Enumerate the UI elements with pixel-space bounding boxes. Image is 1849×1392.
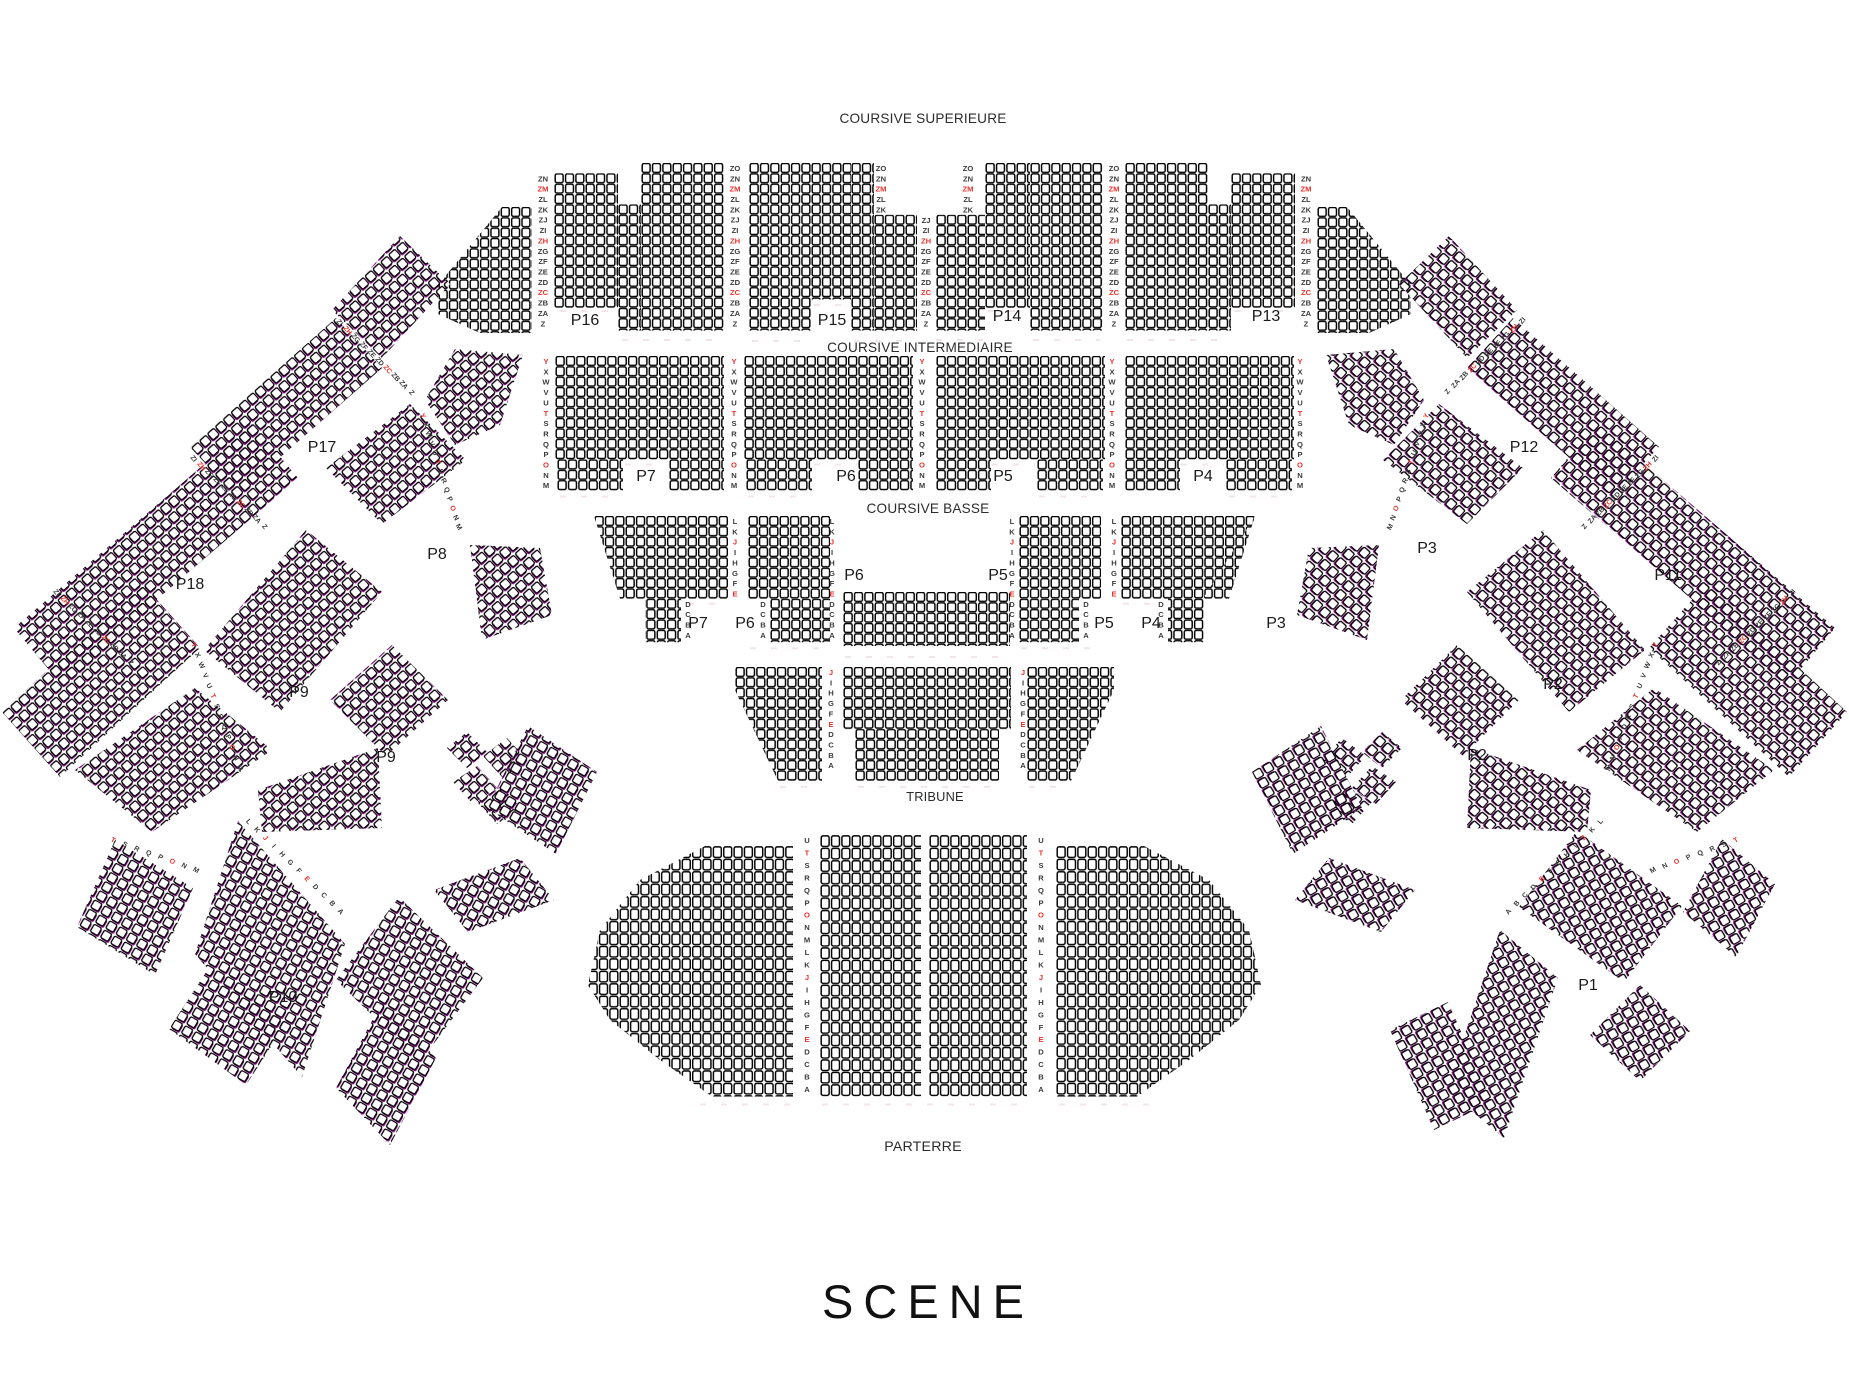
svg-text:A: A [685, 631, 691, 640]
svg-text:ZD: ZD [730, 278, 741, 287]
svg-text:P: P [804, 898, 809, 907]
svg-text:E: E [829, 590, 834, 599]
svg-text:Z: Z [1112, 319, 1117, 328]
svg-text:E: E [1111, 590, 1116, 599]
svg-text:H: H [732, 558, 737, 567]
svg-text:P15: P15 [818, 312, 847, 329]
svg-text:ZG: ZG [1301, 247, 1312, 256]
svg-text:Y: Y [1109, 357, 1114, 366]
svg-text:ZA: ZA [538, 309, 549, 318]
svg-text:ZD: ZD [538, 278, 549, 287]
svg-text:E: E [1009, 590, 1014, 599]
svg-text:ZE: ZE [730, 268, 740, 277]
svg-text:ZB: ZB [730, 299, 741, 308]
svg-text:COURSIVE BASSE: COURSIVE BASSE [867, 501, 990, 516]
svg-text:ZL: ZL [730, 195, 740, 204]
svg-text:G: G [804, 1010, 810, 1019]
svg-text:ZH: ZH [730, 236, 740, 245]
svg-text:C: C [804, 1060, 810, 1069]
svg-text:S: S [804, 861, 809, 870]
svg-text:ZE: ZE [1301, 268, 1311, 277]
svg-text:P5: P5 [993, 468, 1013, 485]
svg-text:T: T [805, 849, 810, 858]
svg-text:P3: P3 [1417, 540, 1437, 557]
svg-text:ZD: ZD [1109, 278, 1120, 287]
svg-text:ZK: ZK [1301, 205, 1312, 214]
svg-text:ZE: ZE [538, 268, 548, 277]
svg-text:ZD: ZD [1301, 278, 1312, 287]
svg-text:N: N [804, 923, 809, 932]
svg-text:A: A [1083, 631, 1089, 640]
svg-text:ZO: ZO [1109, 164, 1120, 173]
svg-text:ZI: ZI [540, 226, 547, 235]
svg-text:L: L [733, 517, 738, 526]
svg-text:O: O [919, 461, 925, 470]
svg-text:K: K [1038, 961, 1044, 970]
svg-text:G: G [1038, 1010, 1044, 1019]
svg-text:K: K [1111, 527, 1117, 536]
svg-text:P1: P1 [1578, 977, 1598, 994]
svg-text:D: D [685, 600, 691, 609]
svg-text:SCENE: SCENE [822, 1275, 1034, 1328]
svg-text:N: N [919, 471, 924, 480]
svg-text:ZN: ZN [876, 174, 886, 183]
svg-text:C: C [1038, 1060, 1044, 1069]
svg-text:W: W [730, 378, 738, 387]
svg-text:ZH: ZH [1301, 236, 1311, 245]
svg-text:O: O [804, 911, 810, 920]
svg-text:ZL: ZL [1109, 195, 1119, 204]
svg-text:F: F [1010, 579, 1015, 588]
svg-text:ZF: ZF [1109, 257, 1119, 266]
svg-text:ZL: ZL [876, 195, 886, 204]
svg-text:H: H [829, 558, 834, 567]
svg-text:D: D [828, 730, 834, 739]
svg-text:B: B [1083, 621, 1089, 630]
svg-text:P: P [543, 450, 548, 459]
svg-text:I: I [806, 985, 808, 994]
svg-text:K: K [1009, 527, 1015, 536]
svg-text:D: D [1158, 600, 1164, 609]
svg-text:ZE: ZE [921, 268, 931, 277]
svg-text:ZK: ZK [1109, 205, 1120, 214]
svg-text:A: A [804, 1085, 810, 1094]
svg-text:L: L [830, 517, 835, 526]
svg-text:Y: Y [731, 357, 736, 366]
svg-text:R: R [1297, 430, 1303, 439]
svg-text:U: U [1109, 398, 1115, 407]
svg-text:ZO: ZO [876, 164, 887, 173]
svg-text:P9: P9 [376, 749, 396, 766]
svg-text:P: P [731, 450, 736, 459]
svg-text:N: N [543, 471, 548, 480]
svg-text:L: L [1039, 948, 1044, 957]
svg-text:H: H [828, 689, 833, 698]
svg-text:O: O [543, 461, 549, 470]
svg-text:G: G [828, 699, 834, 708]
svg-text:W: W [1108, 378, 1116, 387]
svg-text:J: J [829, 668, 833, 677]
svg-text:D: D [1038, 1048, 1044, 1057]
svg-text:F: F [805, 1023, 810, 1032]
svg-text:A: A [1009, 631, 1015, 640]
svg-text:I: I [1022, 678, 1024, 687]
svg-text:M: M [919, 481, 925, 490]
svg-text:COURSIVE SUPERIEURE: COURSIVE SUPERIEURE [840, 111, 1007, 126]
svg-text:I: I [1040, 985, 1042, 994]
svg-text:E: E [1020, 720, 1025, 729]
svg-text:Q: Q [1109, 440, 1115, 449]
svg-text:ZK: ZK [876, 205, 887, 214]
svg-text:M: M [1109, 481, 1115, 490]
svg-text:Z: Z [541, 319, 546, 328]
svg-text:X: X [1297, 367, 1302, 376]
svg-text:G: G [1009, 569, 1015, 578]
svg-text:I: I [734, 548, 736, 557]
svg-text:ZI: ZI [1111, 226, 1118, 235]
svg-text:COURSIVE INTERMEDIAIRE: COURSIVE INTERMEDIAIRE [827, 340, 1013, 355]
svg-text:M: M [1038, 936, 1044, 945]
svg-text:N: N [1038, 923, 1043, 932]
svg-text:L: L [1112, 517, 1117, 526]
svg-text:P9: P9 [289, 684, 309, 701]
svg-text:ZG: ZG [730, 247, 741, 256]
svg-text:P3: P3 [1266, 615, 1286, 632]
svg-text:ZI: ZI [1303, 226, 1310, 235]
svg-text:PARTERRE: PARTERRE [884, 1139, 962, 1155]
svg-text:ZA: ZA [921, 309, 932, 318]
svg-text:ZA: ZA [1109, 309, 1120, 318]
svg-text:T: T [1298, 409, 1303, 418]
svg-text:I: I [830, 678, 832, 687]
svg-text:ZG: ZG [538, 247, 549, 256]
svg-text:P2: P2 [1467, 747, 1487, 764]
svg-text:S: S [1297, 419, 1302, 428]
svg-text:ZB: ZB [1109, 299, 1120, 308]
svg-text:R: R [543, 430, 549, 439]
svg-text:I: I [1113, 548, 1115, 557]
svg-text:Z: Z [924, 319, 929, 328]
svg-text:U: U [919, 398, 925, 407]
svg-text:ZO: ZO [730, 164, 741, 173]
svg-text:M: M [1297, 481, 1303, 490]
svg-text:E: E [1038, 1035, 1043, 1044]
svg-text:B: B [829, 621, 835, 630]
svg-text:C: C [1083, 610, 1089, 619]
svg-text:ZJ: ZJ [731, 216, 740, 225]
svg-text:ZJ: ZJ [922, 216, 931, 225]
svg-text:ZF: ZF [730, 257, 740, 266]
svg-text:F: F [1039, 1023, 1044, 1032]
svg-text:R: R [804, 873, 810, 882]
svg-text:ZK: ZK [538, 205, 549, 214]
svg-text:Z: Z [1304, 319, 1309, 328]
svg-text:G: G [732, 569, 738, 578]
svg-text:ZC: ZC [921, 288, 932, 297]
svg-text:ZL: ZL [538, 195, 548, 204]
svg-text:A: A [1158, 631, 1164, 640]
svg-text:P17: P17 [308, 439, 337, 456]
svg-text:F: F [1112, 579, 1117, 588]
svg-text:E: E [804, 1035, 809, 1044]
svg-text:ZK: ZK [963, 205, 974, 214]
svg-text:F: F [733, 579, 738, 588]
svg-text:Q: Q [919, 440, 925, 449]
svg-text:H: H [1038, 998, 1043, 1007]
svg-text:P: P [1109, 450, 1114, 459]
svg-text:C: C [828, 741, 834, 750]
svg-text:P6: P6 [844, 567, 864, 584]
svg-text:N: N [731, 471, 736, 480]
svg-text:U: U [1038, 836, 1044, 845]
svg-text:ZC: ZC [1301, 288, 1312, 297]
svg-text:A: A [829, 631, 835, 640]
svg-text:P14: P14 [993, 308, 1022, 325]
svg-text:ZM: ZM [1109, 185, 1120, 194]
svg-text:B: B [760, 621, 766, 630]
svg-text:U: U [543, 398, 549, 407]
svg-text:D: D [1083, 600, 1089, 609]
svg-text:ZL: ZL [1301, 195, 1311, 204]
svg-text:T: T [1039, 849, 1044, 858]
svg-text:B: B [804, 1073, 810, 1082]
svg-text:Y: Y [919, 357, 924, 366]
svg-text:ZM: ZM [538, 185, 549, 194]
svg-text:ZK: ZK [730, 205, 741, 214]
svg-text:ZA: ZA [730, 309, 741, 318]
svg-text:ZN: ZN [538, 174, 548, 183]
svg-text:T: T [920, 409, 925, 418]
svg-text:ZE: ZE [1109, 268, 1119, 277]
svg-text:ZB: ZB [538, 299, 549, 308]
svg-text:U: U [731, 398, 737, 407]
svg-text:M: M [731, 481, 737, 490]
svg-text:T: T [544, 409, 549, 418]
svg-text:L: L [805, 948, 810, 957]
svg-text:ZC: ZC [1109, 288, 1120, 297]
svg-text:TRIBUNE: TRIBUNE [906, 789, 964, 804]
svg-text:E: E [732, 590, 737, 599]
svg-text:R: R [1038, 873, 1044, 882]
svg-text:Y: Y [543, 357, 548, 366]
svg-text:X: X [731, 367, 736, 376]
svg-text:Q: Q [1038, 886, 1044, 895]
svg-text:ZO: ZO [963, 164, 974, 173]
svg-text:ZJ: ZJ [1302, 216, 1311, 225]
svg-text:S: S [731, 419, 736, 428]
svg-text:ZI: ZI [732, 226, 739, 235]
svg-text:ZD: ZD [921, 278, 932, 287]
svg-text:F: F [830, 579, 835, 588]
svg-text:G: G [829, 569, 835, 578]
svg-text:K: K [804, 961, 810, 970]
svg-text:S: S [919, 419, 924, 428]
svg-text:U: U [804, 836, 810, 845]
svg-text:J: J [1039, 973, 1043, 982]
svg-text:J: J [1010, 538, 1014, 547]
svg-text:H: H [1009, 558, 1014, 567]
svg-text:ZM: ZM [876, 185, 887, 194]
svg-text:J: J [805, 973, 809, 982]
svg-text:R: R [919, 430, 925, 439]
svg-text:G: G [1020, 699, 1026, 708]
svg-text:N: N [1109, 471, 1114, 480]
svg-text:P7: P7 [688, 615, 708, 632]
svg-text:O: O [731, 461, 737, 470]
svg-text:A: A [1020, 761, 1026, 770]
svg-text:ZN: ZN [963, 174, 973, 183]
svg-text:P: P [1038, 898, 1043, 907]
svg-text:C: C [1020, 741, 1026, 750]
svg-text:P4: P4 [1193, 468, 1213, 485]
svg-text:P2: P2 [1543, 676, 1563, 693]
svg-text:ZH: ZH [1109, 236, 1119, 245]
svg-text:ZC: ZC [538, 288, 549, 297]
svg-text:P: P [1297, 450, 1302, 459]
svg-text:ZB: ZB [1301, 299, 1312, 308]
svg-text:U: U [1297, 398, 1303, 407]
svg-text:B: B [1020, 751, 1026, 760]
svg-text:W: W [918, 378, 926, 387]
svg-text:A: A [828, 761, 834, 770]
svg-text:P10: P10 [269, 989, 298, 1006]
svg-text:ZA: ZA [1301, 309, 1312, 318]
svg-text:K: K [829, 527, 835, 536]
svg-text:D: D [804, 1048, 810, 1057]
svg-text:P8: P8 [427, 546, 447, 563]
svg-text:R: R [731, 430, 737, 439]
svg-text:I: I [1011, 548, 1013, 557]
svg-text:Q: Q [1297, 440, 1303, 449]
svg-text:A: A [760, 631, 766, 640]
svg-text:D: D [829, 600, 835, 609]
svg-text:P11: P11 [1654, 567, 1681, 584]
svg-text:Q: Q [731, 440, 737, 449]
svg-text:ZF: ZF [921, 257, 931, 266]
svg-text:N: N [1297, 471, 1302, 480]
svg-text:ZG: ZG [921, 247, 932, 256]
svg-text:G: G [1111, 569, 1117, 578]
svg-text:ZN: ZN [1109, 174, 1119, 183]
svg-text:J: J [1112, 538, 1116, 547]
svg-text:Y: Y [1297, 357, 1302, 366]
svg-text:P12: P12 [1510, 439, 1539, 456]
svg-text:K: K [732, 527, 738, 536]
svg-text:ZM: ZM [963, 185, 974, 194]
svg-text:W: W [542, 378, 550, 387]
svg-text:A: A [1038, 1085, 1044, 1094]
svg-text:S: S [543, 419, 548, 428]
svg-text:P6: P6 [836, 468, 856, 485]
svg-text:ZH: ZH [538, 236, 548, 245]
svg-text:Q: Q [543, 440, 549, 449]
svg-text:ZC: ZC [730, 288, 741, 297]
svg-text:P5: P5 [1094, 615, 1114, 632]
svg-text:P4: P4 [1141, 615, 1161, 632]
svg-text:J: J [733, 538, 737, 547]
svg-text:I: I [831, 548, 833, 557]
svg-text:B: B [828, 751, 834, 760]
svg-text:D: D [1020, 730, 1026, 739]
svg-text:C: C [1009, 610, 1015, 619]
svg-text:Q: Q [804, 886, 810, 895]
svg-text:O: O [1038, 911, 1044, 920]
svg-text:B: B [1038, 1073, 1044, 1082]
svg-text:R: R [1109, 430, 1115, 439]
svg-text:O: O [1109, 461, 1115, 470]
svg-text:P6: P6 [735, 615, 755, 632]
svg-text:T: T [1110, 409, 1115, 418]
svg-text:P7: P7 [636, 468, 656, 485]
svg-text:ZF: ZF [1301, 257, 1311, 266]
svg-text:ZM: ZM [730, 185, 741, 194]
svg-text:S: S [1109, 419, 1114, 428]
svg-text:J: J [1021, 668, 1025, 677]
svg-text:C: C [829, 610, 835, 619]
svg-text:O: O [1297, 461, 1303, 470]
svg-text:ZJ: ZJ [539, 216, 548, 225]
svg-text:J: J [830, 538, 834, 547]
svg-text:C: C [760, 610, 766, 619]
svg-text:ZL: ZL [963, 195, 973, 204]
svg-text:ZJ: ZJ [1110, 216, 1119, 225]
svg-text:P16: P16 [571, 312, 600, 329]
svg-text:ZI: ZI [923, 226, 930, 235]
svg-text:S: S [1038, 861, 1043, 870]
svg-text:P5: P5 [988, 567, 1008, 584]
svg-text:H: H [1020, 689, 1025, 698]
svg-text:B: B [1009, 621, 1015, 630]
svg-text:ZN: ZN [730, 174, 740, 183]
svg-text:M: M [804, 936, 810, 945]
svg-text:ZG: ZG [1109, 247, 1120, 256]
svg-text:H: H [804, 998, 809, 1007]
svg-text:X: X [1109, 367, 1114, 376]
svg-text:W: W [1296, 378, 1304, 387]
svg-text:P18: P18 [176, 576, 205, 593]
svg-text:ZB: ZB [921, 299, 932, 308]
svg-text:T: T [732, 409, 737, 418]
svg-text:M: M [543, 481, 549, 490]
svg-text:ZF: ZF [538, 257, 548, 266]
svg-text:ZN: ZN [1301, 174, 1311, 183]
svg-text:P: P [919, 450, 924, 459]
svg-text:P13: P13 [1252, 308, 1281, 325]
svg-text:L: L [1010, 517, 1015, 526]
svg-text:ZM: ZM [1301, 185, 1312, 194]
svg-text:D: D [760, 600, 766, 609]
svg-text:F: F [1021, 709, 1026, 718]
svg-text:D: D [1009, 600, 1015, 609]
svg-text:Z: Z [733, 319, 738, 328]
svg-text:H: H [1111, 558, 1116, 567]
svg-text:E: E [828, 720, 833, 729]
svg-text:X: X [543, 367, 548, 376]
svg-text:ZH: ZH [921, 236, 931, 245]
svg-text:F: F [829, 709, 834, 718]
svg-text:X: X [919, 367, 924, 376]
